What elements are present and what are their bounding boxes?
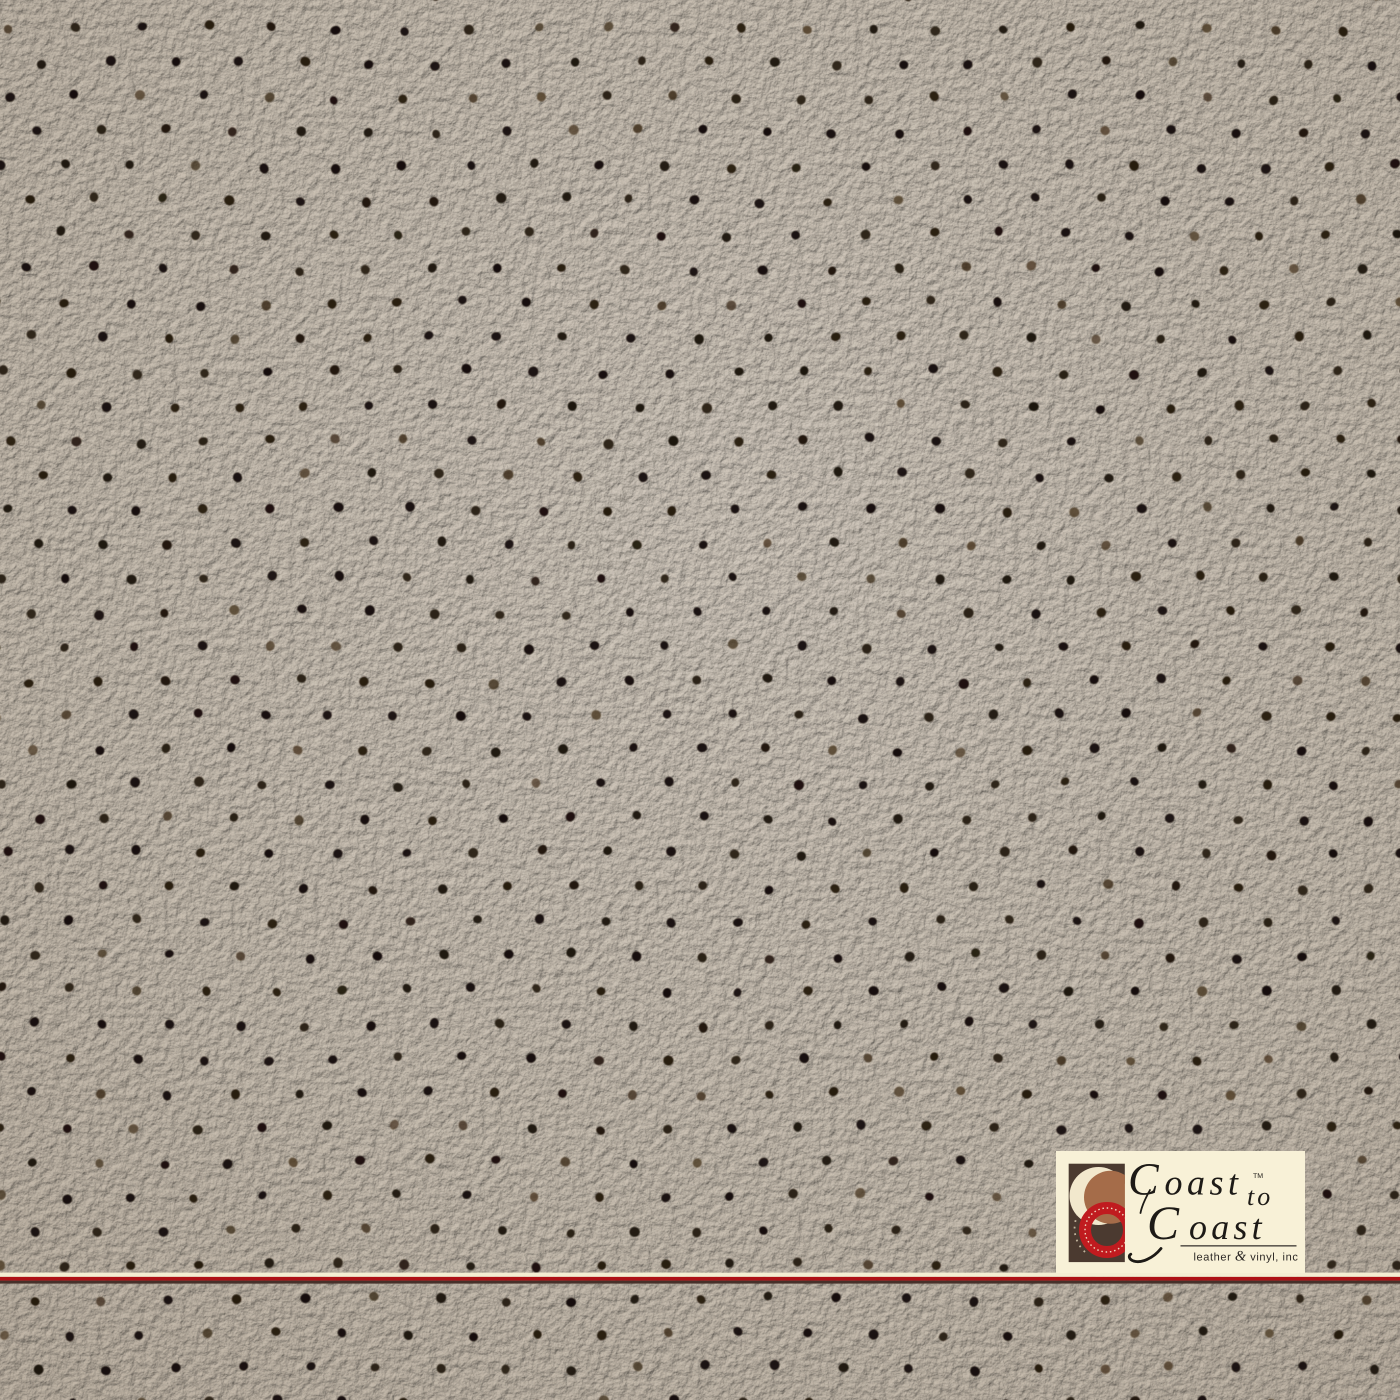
- svg-text:leather & vinyl, inc: leather & vinyl, inc: [1194, 1249, 1299, 1265]
- svg-text:oast: oast: [1189, 1207, 1266, 1247]
- svg-text:C: C: [1147, 1197, 1180, 1250]
- svg-text:TM: TM: [1253, 1173, 1263, 1180]
